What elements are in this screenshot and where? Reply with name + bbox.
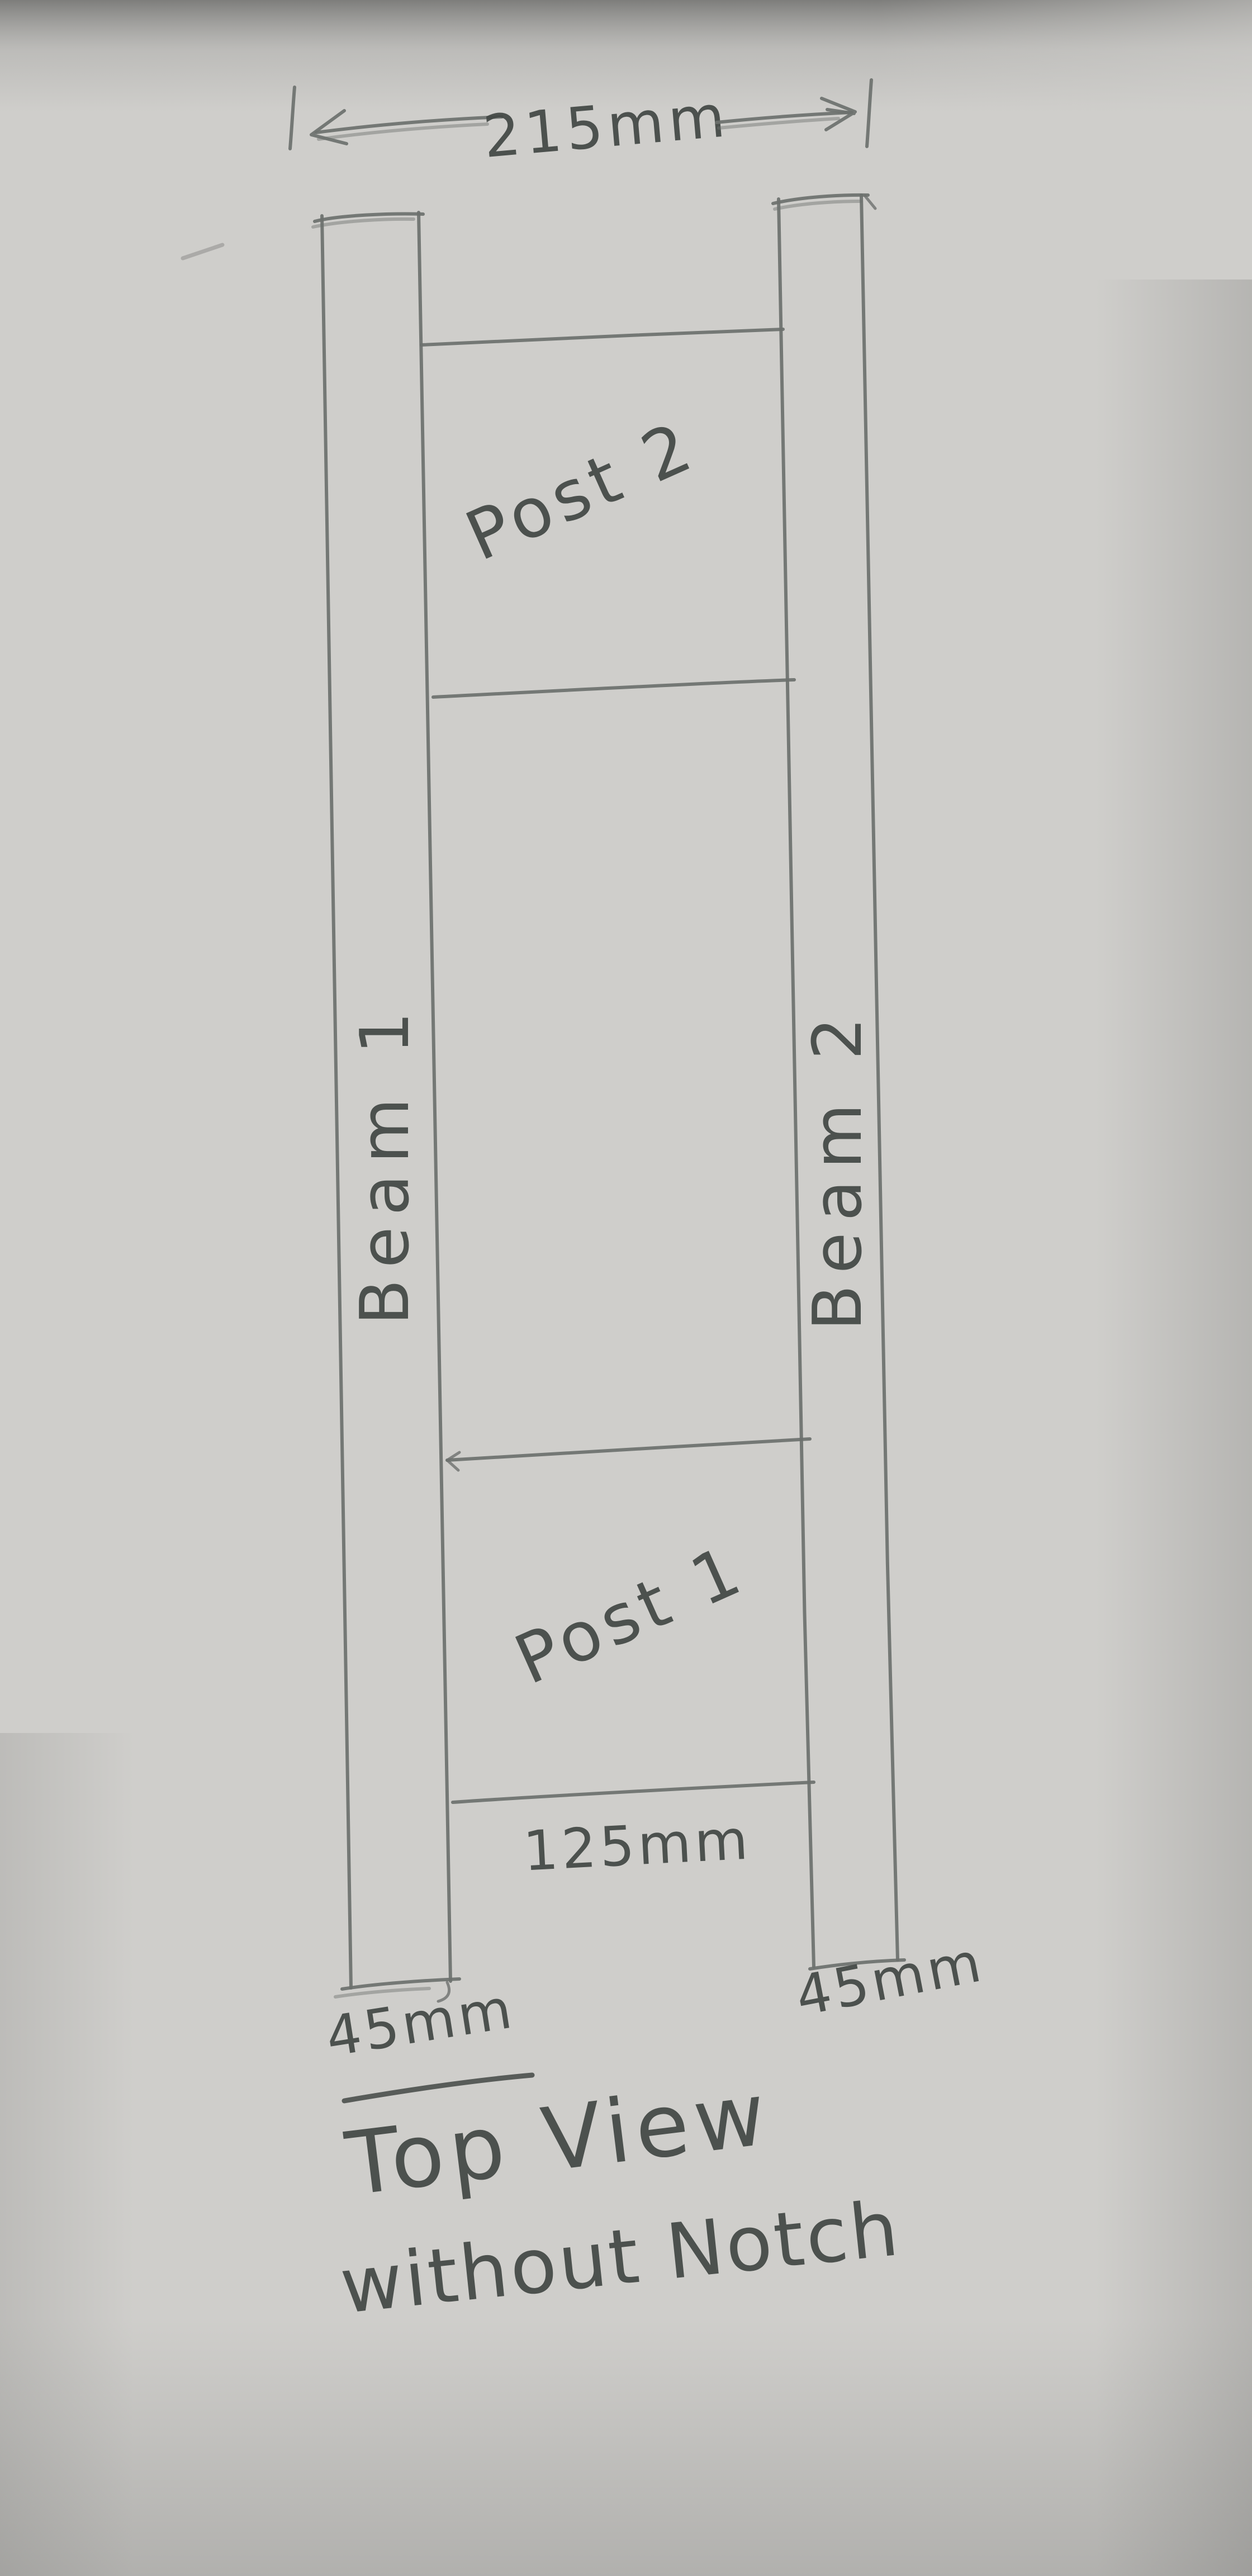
- photo-left-shadow: [0, 1733, 134, 2576]
- beam-1-label: Beam 1: [347, 1000, 424, 1325]
- post-1-width-label: 125mm: [521, 1808, 752, 1883]
- pencil-sketch-canvas: 215mm Beam 1 Beam 2 Post 2 Post 1: [0, 0, 1252, 2576]
- photo-bottom-shadow: [0, 2320, 1252, 2576]
- sketch-photo: 215mm Beam 1 Beam 2 Post 2 Post 1: [0, 0, 1252, 2576]
- photo-right-shadow: [1095, 280, 1252, 2576]
- paper-background: [0, 0, 1252, 2576]
- beam-2-label: Beam 2: [799, 1006, 877, 1330]
